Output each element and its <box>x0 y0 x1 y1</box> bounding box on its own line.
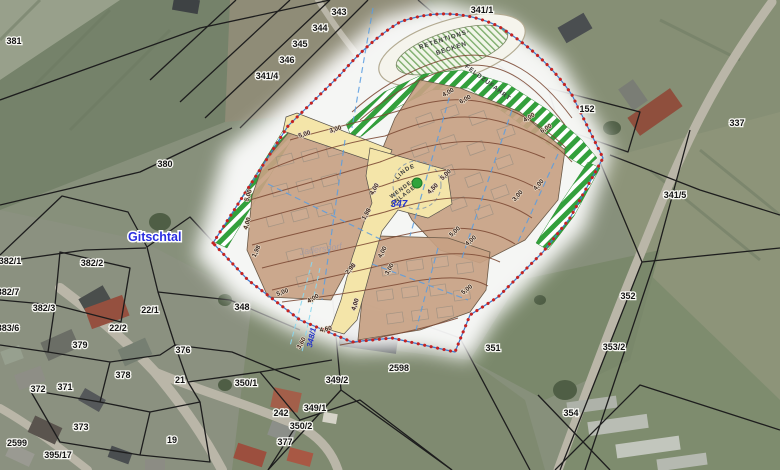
parcel-label: 382/3 <box>33 303 56 313</box>
proposed-building-footprint <box>406 259 423 271</box>
proposed-building-footprint <box>429 284 446 296</box>
parcel-label: 343 <box>331 7 346 17</box>
proposed-building-footprint <box>436 306 453 318</box>
parcel-label: 152 <box>579 104 594 114</box>
parcel-label: 242 <box>273 408 288 418</box>
parcel-label: 337 <box>729 118 744 128</box>
parcel-label: 341/5 <box>664 190 687 200</box>
parcel-label: 354 <box>563 408 578 418</box>
place-label: Gitschtal <box>128 230 182 244</box>
parcel-label: 377 <box>277 437 292 447</box>
parcel-label: 349/2 <box>326 375 349 385</box>
parcel-label: 351 <box>485 343 500 353</box>
parcel-label: 382/2 <box>81 258 104 268</box>
parcel-label: 352 <box>620 291 635 301</box>
parcel-label: 372 <box>30 384 45 394</box>
parcel-label: 380 <box>157 159 172 169</box>
parcel-label: 22/2 <box>109 323 127 333</box>
proposed-building-footprint <box>386 312 403 324</box>
parcel-label: 395/17 <box>44 450 72 460</box>
proposed-building-footprint <box>401 286 418 298</box>
parcel-label: 371 <box>57 382 72 392</box>
parcel-label: 381 <box>6 36 21 46</box>
parcel-label: 378 <box>115 370 130 380</box>
parcel-label: 379 <box>72 340 87 350</box>
parcel-label: 353/2 <box>603 342 626 352</box>
parcel-label: 373 <box>73 422 88 432</box>
parcel-label: 350/2 <box>290 421 313 431</box>
proposed-building-footprint <box>411 309 428 321</box>
parcel-label: 345 <box>292 39 307 49</box>
building <box>145 459 165 470</box>
parcel-label: 382/7 <box>0 287 19 297</box>
proposed-building-footprint <box>376 289 393 301</box>
parcel-label: 21 <box>175 375 185 385</box>
aerial-map[interactable]: RETENTIONS- BECKEN <box>0 0 780 470</box>
parcel-label: 376 <box>175 345 190 355</box>
parcel-label: 382/1 <box>0 256 21 266</box>
parcel-label: 341/4 <box>256 71 279 81</box>
map-canvas[interactable]: RETENTIONS- BECKEN <box>0 0 780 470</box>
parcel-label: 341/1 <box>471 5 494 15</box>
parcel-label: 344 <box>312 23 327 33</box>
proposed-building-footprint <box>456 262 473 274</box>
parcel-label: 346 <box>279 55 294 65</box>
parcel-347-label: 347 <box>391 199 408 210</box>
parcel-label: 383/6 <box>0 323 19 333</box>
parcel-label: 19 <box>167 435 177 445</box>
parcel-label: 348 <box>234 302 249 312</box>
parcel-label: 2599 <box>7 438 27 448</box>
parcel-label: 350/1 <box>235 378 258 388</box>
parcel-label: 2598 <box>389 363 409 373</box>
parcel-label: 22/1 <box>141 305 159 315</box>
parcel-label: 349/1 <box>304 403 327 413</box>
